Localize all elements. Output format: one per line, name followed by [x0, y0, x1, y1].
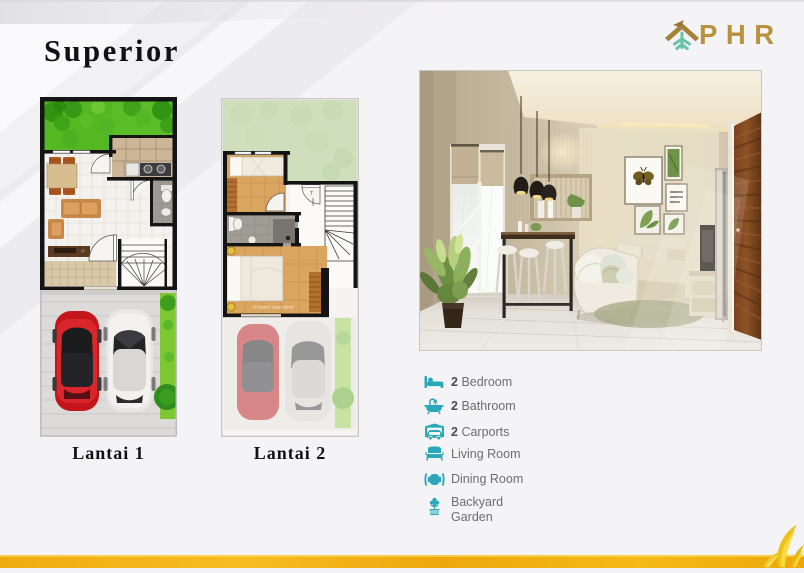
svg-text:PHR: PHR: [699, 19, 783, 50]
svg-text:(Carport atap view): (Carport atap view): [253, 305, 294, 311]
